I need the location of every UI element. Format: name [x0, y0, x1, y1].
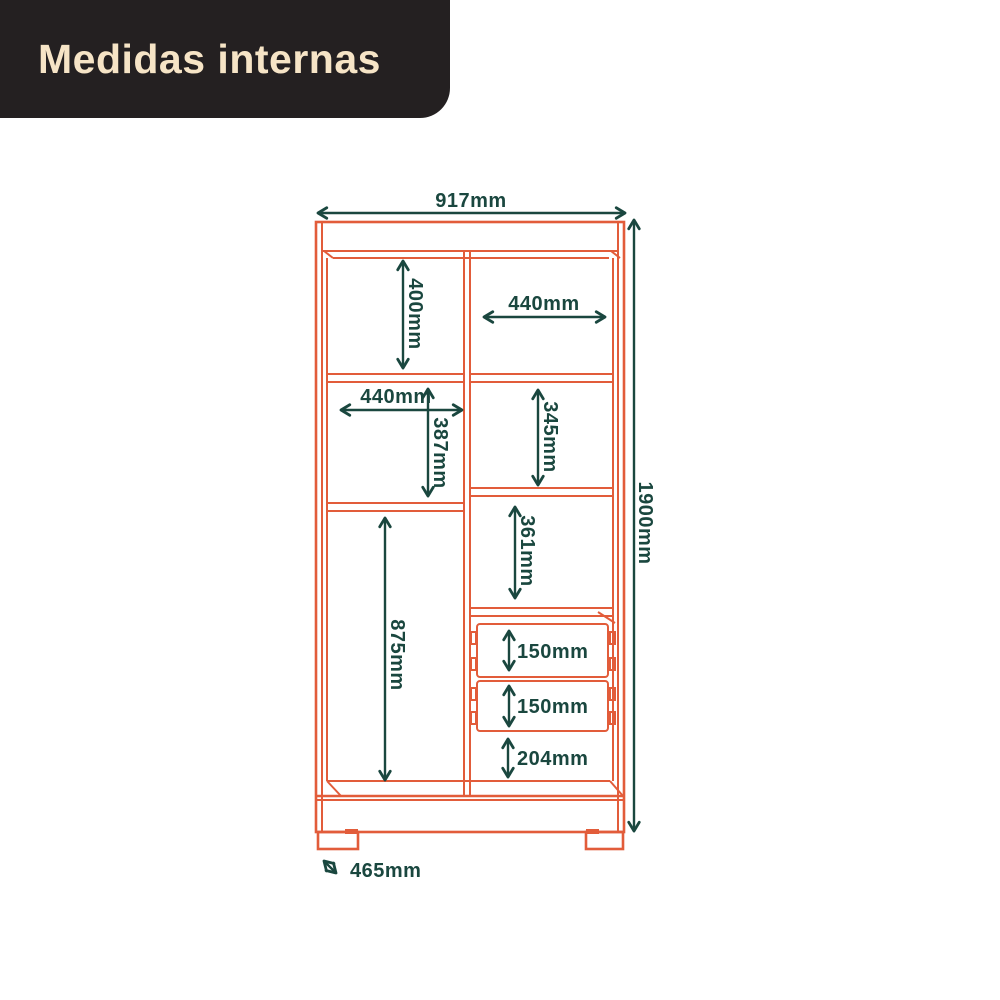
dimension-top-left-height: 400mm — [403, 261, 426, 368]
dimension-depth: 465mm — [324, 860, 421, 882]
left-foot-tab — [345, 829, 358, 834]
depth-label: 465mm — [350, 860, 421, 882]
ceiling-bevel-left — [324, 251, 333, 258]
mid-left-width-label: 440mm — [360, 386, 431, 408]
top-right-width-label: 440mm — [508, 293, 579, 315]
drawer-2-slide-left-bottom — [471, 712, 476, 724]
mid-left-height-label: 387mm — [429, 417, 451, 488]
bottom-right-height-label: 204mm — [517, 748, 588, 770]
dimension-bottom-right-height: 204mm — [508, 739, 588, 777]
dimension-tall-left-height: 875mm — [385, 518, 408, 780]
dimension-mid-left-width: 440mm — [341, 386, 462, 410]
drawer-2-slide-left-top — [471, 688, 476, 700]
right-foot — [586, 832, 623, 849]
dimension-top-right-width: 440mm — [484, 293, 605, 317]
dimension-drawer-2-height: 150mm — [509, 686, 588, 726]
floor-bevel-right — [610, 781, 623, 796]
drawer-2-height-label: 150mm — [517, 696, 588, 718]
dimension-mid-right-height: 345mm — [538, 390, 561, 485]
dimension-total-height: 1900mm — [634, 220, 656, 831]
dimension-annotations: 917mm 1900mm 400mm 440mm 440mm 387mm 345… — [318, 190, 656, 882]
total-width-label: 917mm — [435, 190, 506, 212]
right-foot-tab — [586, 829, 599, 834]
depth-arrow — [324, 861, 336, 873]
top-left-height-label: 400mm — [404, 278, 426, 349]
drawer-1-slide-left-bottom — [471, 658, 476, 670]
lower-right-height-label: 361mm — [516, 515, 538, 586]
floor-bevel-left — [327, 781, 341, 796]
left-foot — [318, 832, 358, 849]
dimension-total-width: 917mm — [318, 190, 625, 213]
dimension-drawer-1-height: 150mm — [509, 631, 588, 670]
drawer-1-slide-left-top — [471, 632, 476, 644]
wardrobe-dimension-diagram: 917mm 1900mm 400mm 440mm 440mm 387mm 345… — [0, 0, 1000, 1000]
mid-right-height-label: 345mm — [539, 401, 561, 472]
total-height-label: 1900mm — [634, 481, 656, 564]
tall-left-height-label: 875mm — [386, 619, 408, 690]
dimension-lower-right-height: 361mm — [515, 507, 538, 598]
drawer-1-height-label: 150mm — [517, 641, 588, 663]
